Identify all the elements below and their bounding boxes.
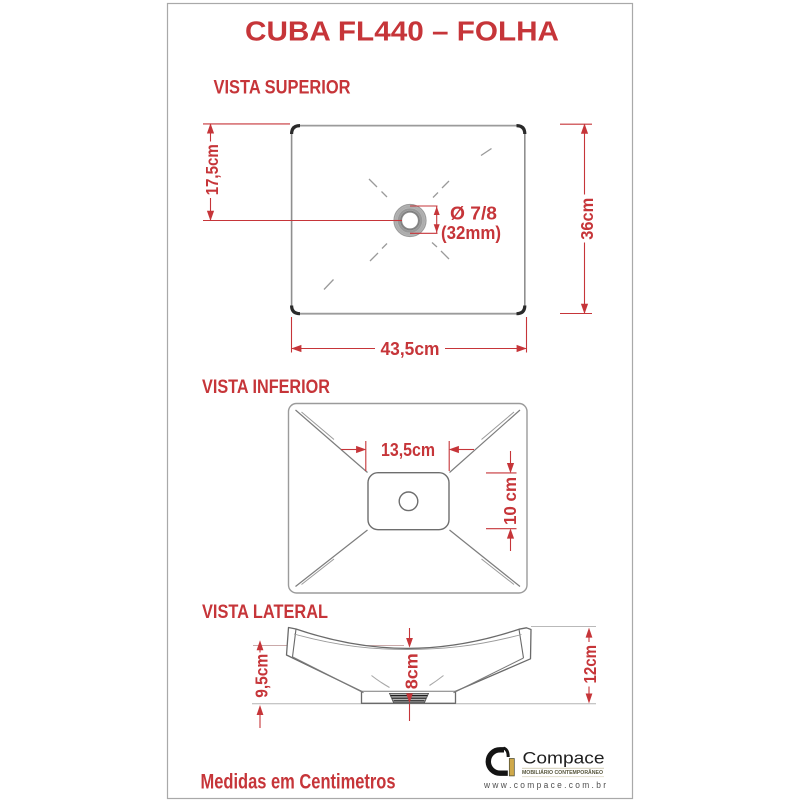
svg-text:8cm: 8cm [402,653,422,689]
svg-text:Ø 7/8: Ø 7/8 [450,203,497,224]
svg-text:VISTA SUPERIOR: VISTA SUPERIOR [214,77,351,98]
svg-text:CUBA FL440 – FOLHA: CUBA FL440 – FOLHA [245,16,559,47]
svg-text:Medidas em Centimetros: Medidas em Centimetros [201,770,396,794]
svg-text:VISTA INFERIOR: VISTA INFERIOR [202,377,330,398]
svg-text:w w w . c o m p a c e . c o m: w w w . c o m p a c e . c o m . b r [483,780,606,790]
svg-text:17,5cm: 17,5cm [202,144,222,195]
svg-text:VISTA LATERAL: VISTA LATERAL [202,602,328,623]
svg-text:(32mm): (32mm) [441,222,501,243]
svg-text:13,5cm: 13,5cm [381,439,435,460]
svg-text:43,5cm: 43,5cm [381,338,440,359]
svg-text:12cm: 12cm [580,645,600,684]
svg-text:MOBILIÁRIO CONTEMPORÂNEO: MOBILIÁRIO CONTEMPORÂNEO [522,769,604,776]
svg-text:10 cm: 10 cm [500,477,520,525]
svg-text:36cm: 36cm [577,198,597,240]
svg-text:9,5cm: 9,5cm [252,654,272,698]
svg-text:Compace: Compace [523,750,605,768]
